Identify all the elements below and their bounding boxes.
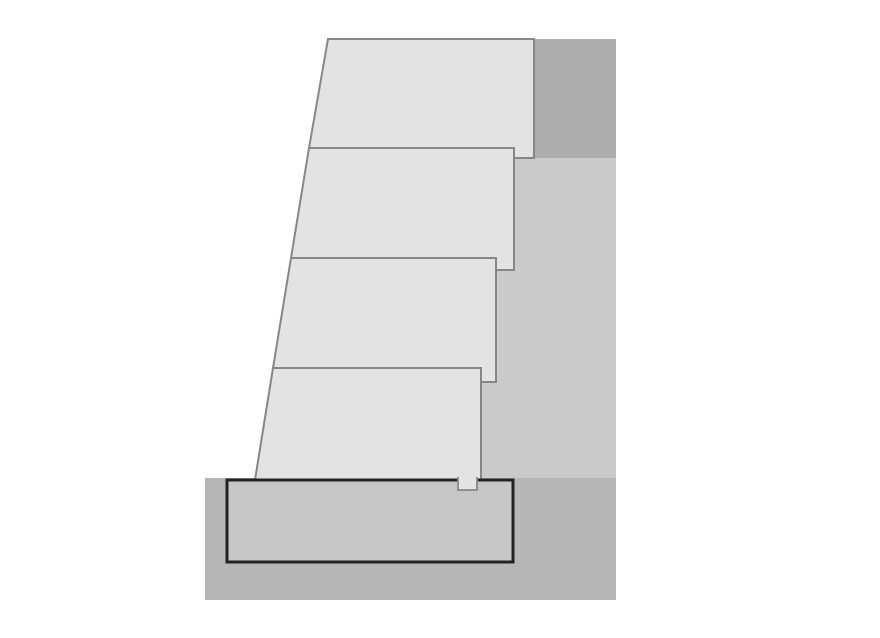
- retained-soil-upper: [534, 39, 616, 158]
- concrete-footing: [227, 480, 513, 562]
- wall-block-4: [255, 368, 481, 480]
- diagram-page: [0, 0, 880, 638]
- wall-block-1: [309, 39, 534, 158]
- wall-block-3: [273, 258, 496, 382]
- shear-key: [458, 477, 477, 490]
- wall-block-2: [291, 148, 514, 270]
- retaining-wall-cross-section: [0, 0, 880, 638]
